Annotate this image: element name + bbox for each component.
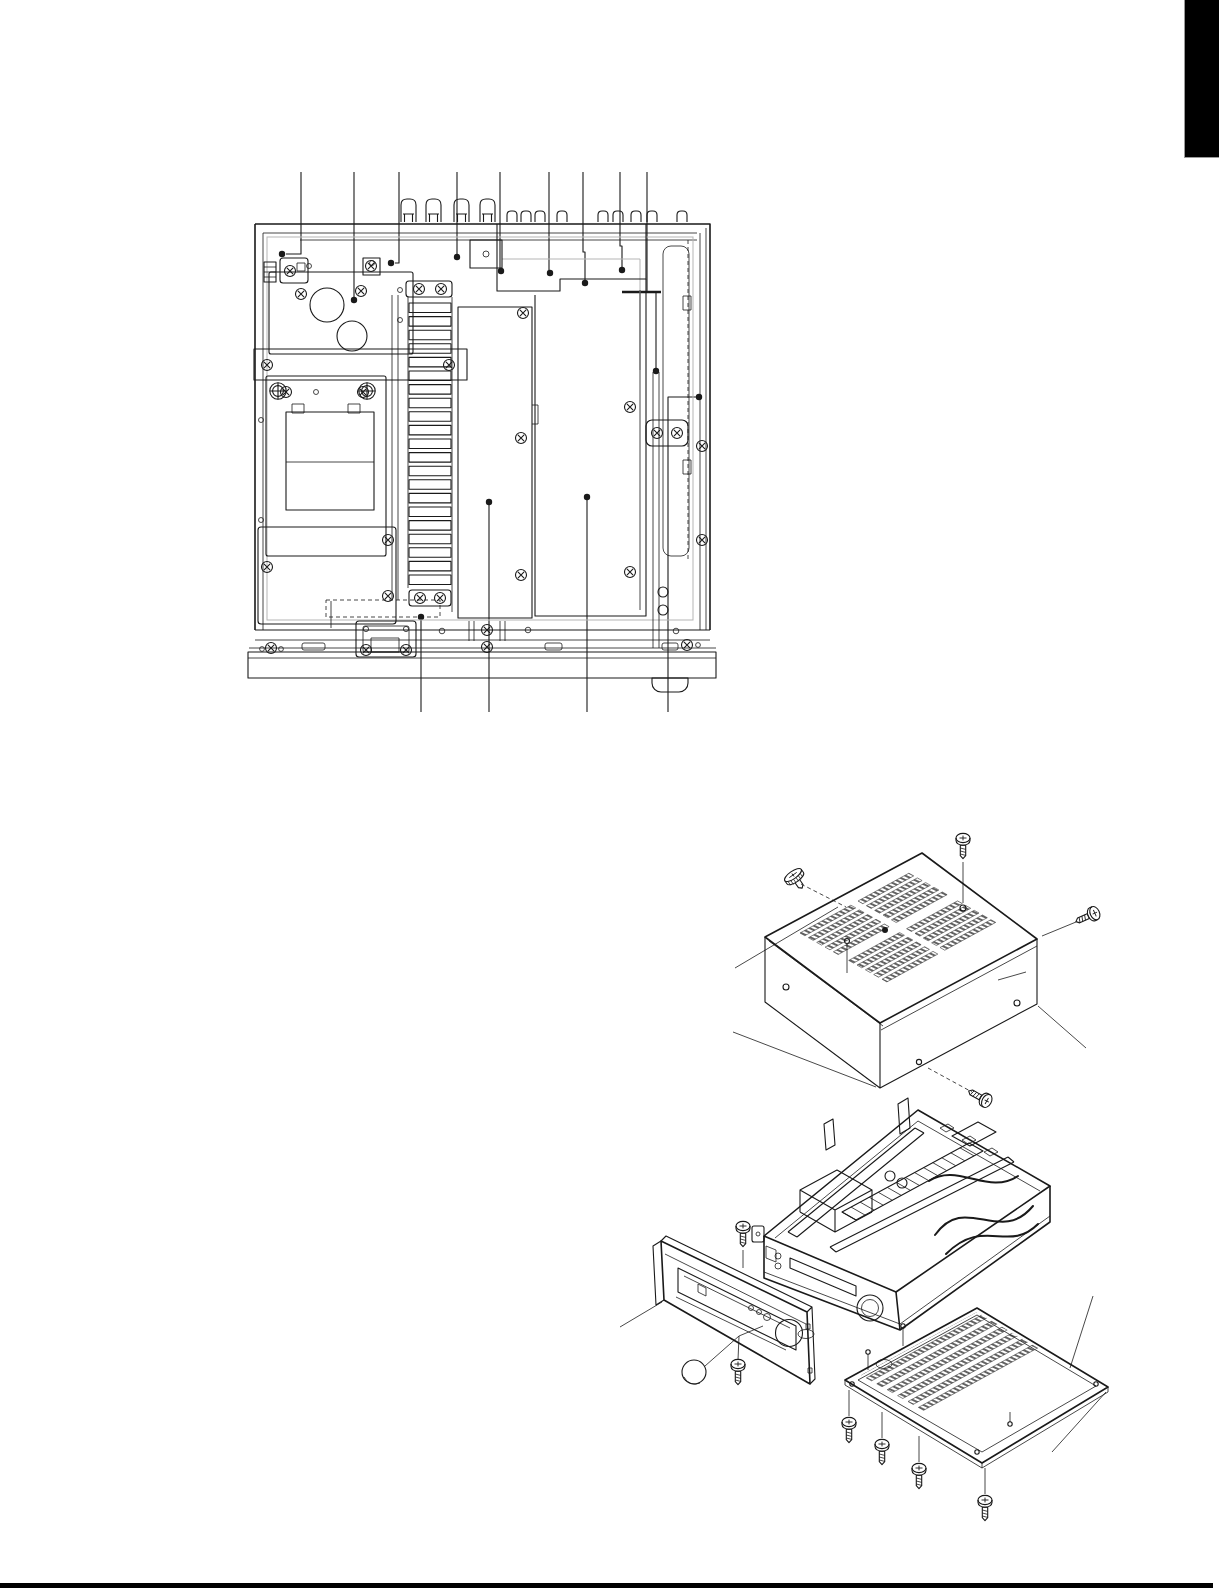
filter-capacitor (337, 321, 367, 351)
front-panel-screws (731, 1221, 763, 1384)
bottom-cover-vents (856, 1300, 1055, 1410)
figure-exploded-view (605, 820, 1120, 1535)
leader-lines-up (279, 172, 661, 374)
chassis-foot (652, 678, 688, 692)
heatsink (392, 281, 452, 612)
figure-top-view (240, 150, 740, 730)
right-side-parts (646, 372, 708, 648)
main-pcb (535, 279, 646, 616)
service-manual-page (0, 0, 1219, 1589)
filter-capacitor (310, 288, 344, 322)
heatsink-fins (409, 303, 451, 585)
top-cover-screws (783, 833, 1102, 1109)
top-cover-vents (800, 873, 996, 982)
main-chassis (752, 1098, 1050, 1369)
footer-rule (0, 1583, 1213, 1588)
top-view-drawing (240, 150, 740, 730)
power-transformer (259, 376, 387, 556)
center-pcb (458, 224, 646, 618)
rear-connectors (401, 199, 687, 222)
shield-plate (258, 527, 440, 628)
leader-lines-down (418, 394, 702, 712)
exploded-view-drawing (605, 820, 1120, 1535)
bottom-cover (842, 1296, 1108, 1521)
page-edge-index-tab (1184, 0, 1219, 158)
chassis-front-face (766, 1246, 883, 1321)
power-supply-board (264, 258, 413, 354)
control-knob (682, 1336, 739, 1384)
top-cover (733, 833, 1102, 1109)
